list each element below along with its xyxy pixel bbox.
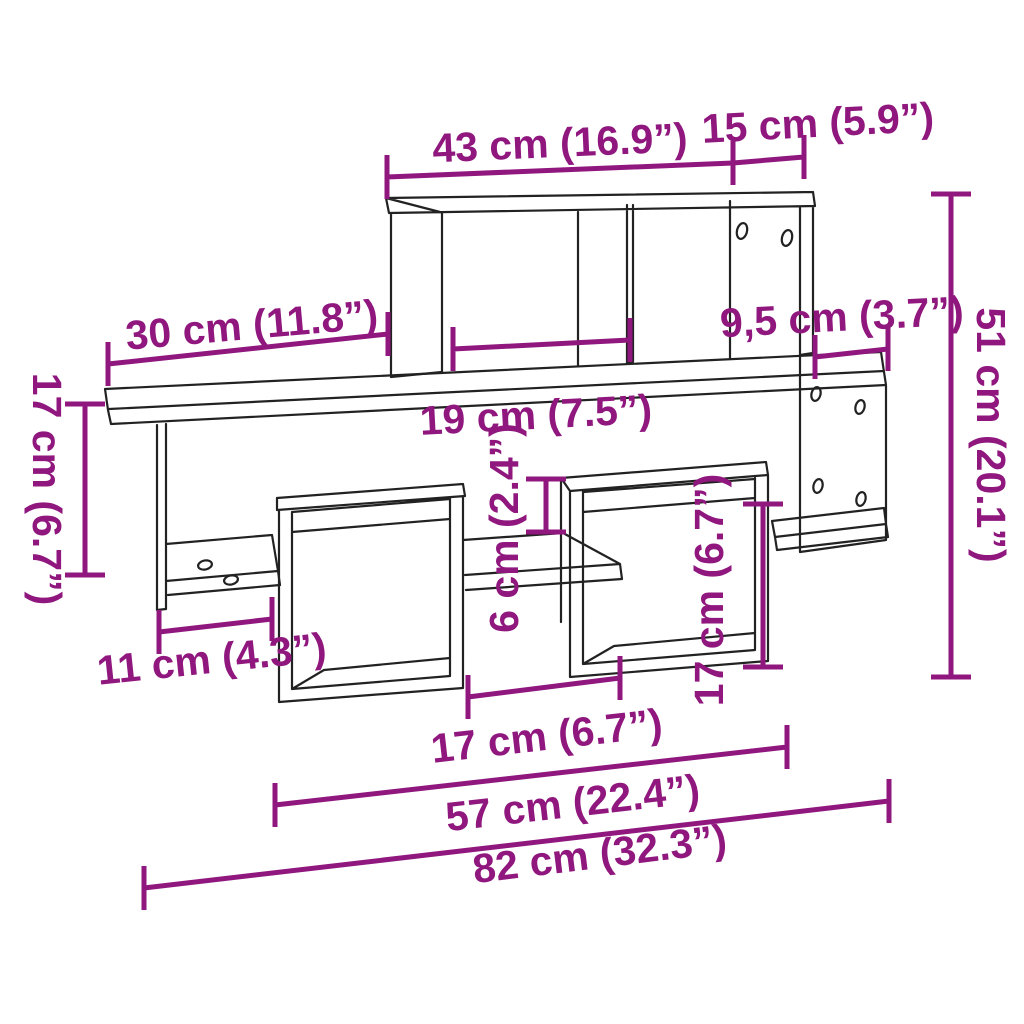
dimension-line <box>743 504 783 667</box>
dimension-label: 17 cm (6.7”) <box>686 474 732 706</box>
upper-box <box>386 192 815 377</box>
dimension-label: 15 cm (5.9”) <box>701 94 936 152</box>
dimension-left-shelf-width: 30 cm (11.8”) <box>108 291 388 386</box>
dimension-label: 6 cm (2.4”) <box>481 423 527 633</box>
dimension-label: 9,5 cm (3.7”) <box>719 287 965 346</box>
wall-shelf-diagram: 43 cm (16.9”) 15 cm (5.9”) 30 cm (11.8”)… <box>0 0 1024 1024</box>
dimension-label: 19 cm (7.5”) <box>419 386 654 444</box>
screw-hole <box>812 478 824 494</box>
screw-hole <box>780 229 794 247</box>
dimension-left-height: 17 cm (6.7”) <box>24 373 105 605</box>
dimension-compartment-width: 19 cm (7.5”) <box>419 318 654 444</box>
right-cube <box>561 462 768 677</box>
screw-hole <box>855 491 867 507</box>
dimension-label: 17 cm (6.7”) <box>429 700 665 772</box>
dimension-label: 43 cm (16.9”) <box>431 114 688 171</box>
dimension-line <box>931 194 971 677</box>
screw-hole <box>735 222 749 240</box>
dimension-right-overhang: 9,5 cm (3.7”) <box>719 287 965 379</box>
dimension-left-gap-width: 11 cm (4.3”) <box>95 597 329 694</box>
dimension-top-depth: 15 cm (5.9”) <box>701 94 936 179</box>
screw-hole <box>854 399 866 415</box>
dimension-total-height: 51 cm (20.1”) <box>931 194 1014 677</box>
dimension-label: 17 cm (6.7”) <box>24 373 70 605</box>
dimension-middle-gap-height: 6 cm (2.4”) <box>481 423 566 633</box>
dimension-top-width: 43 cm (16.9”) <box>387 114 733 199</box>
dimension-label: 11 cm (4.3”) <box>95 624 329 694</box>
dimension-label: 51 cm (20.1”) <box>968 307 1014 562</box>
dimension-line <box>453 318 630 371</box>
dimension-diagram: 43 cm (16.9”) 15 cm (5.9”) 30 cm (11.8”)… <box>0 0 1024 1024</box>
screw-hole <box>197 559 213 571</box>
left-wing <box>157 424 280 610</box>
